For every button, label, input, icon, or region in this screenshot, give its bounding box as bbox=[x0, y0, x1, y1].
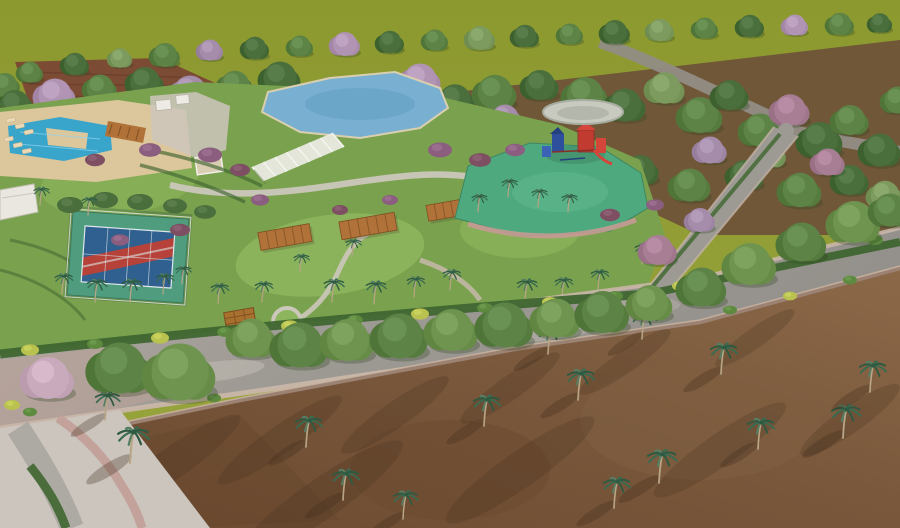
skate-bowl bbox=[543, 100, 623, 124]
scene-svg bbox=[0, 0, 900, 528]
sports-court bbox=[65, 207, 191, 305]
cabana bbox=[176, 94, 190, 104]
cabana bbox=[156, 99, 172, 111]
aerial-render-township-park bbox=[0, 0, 900, 528]
